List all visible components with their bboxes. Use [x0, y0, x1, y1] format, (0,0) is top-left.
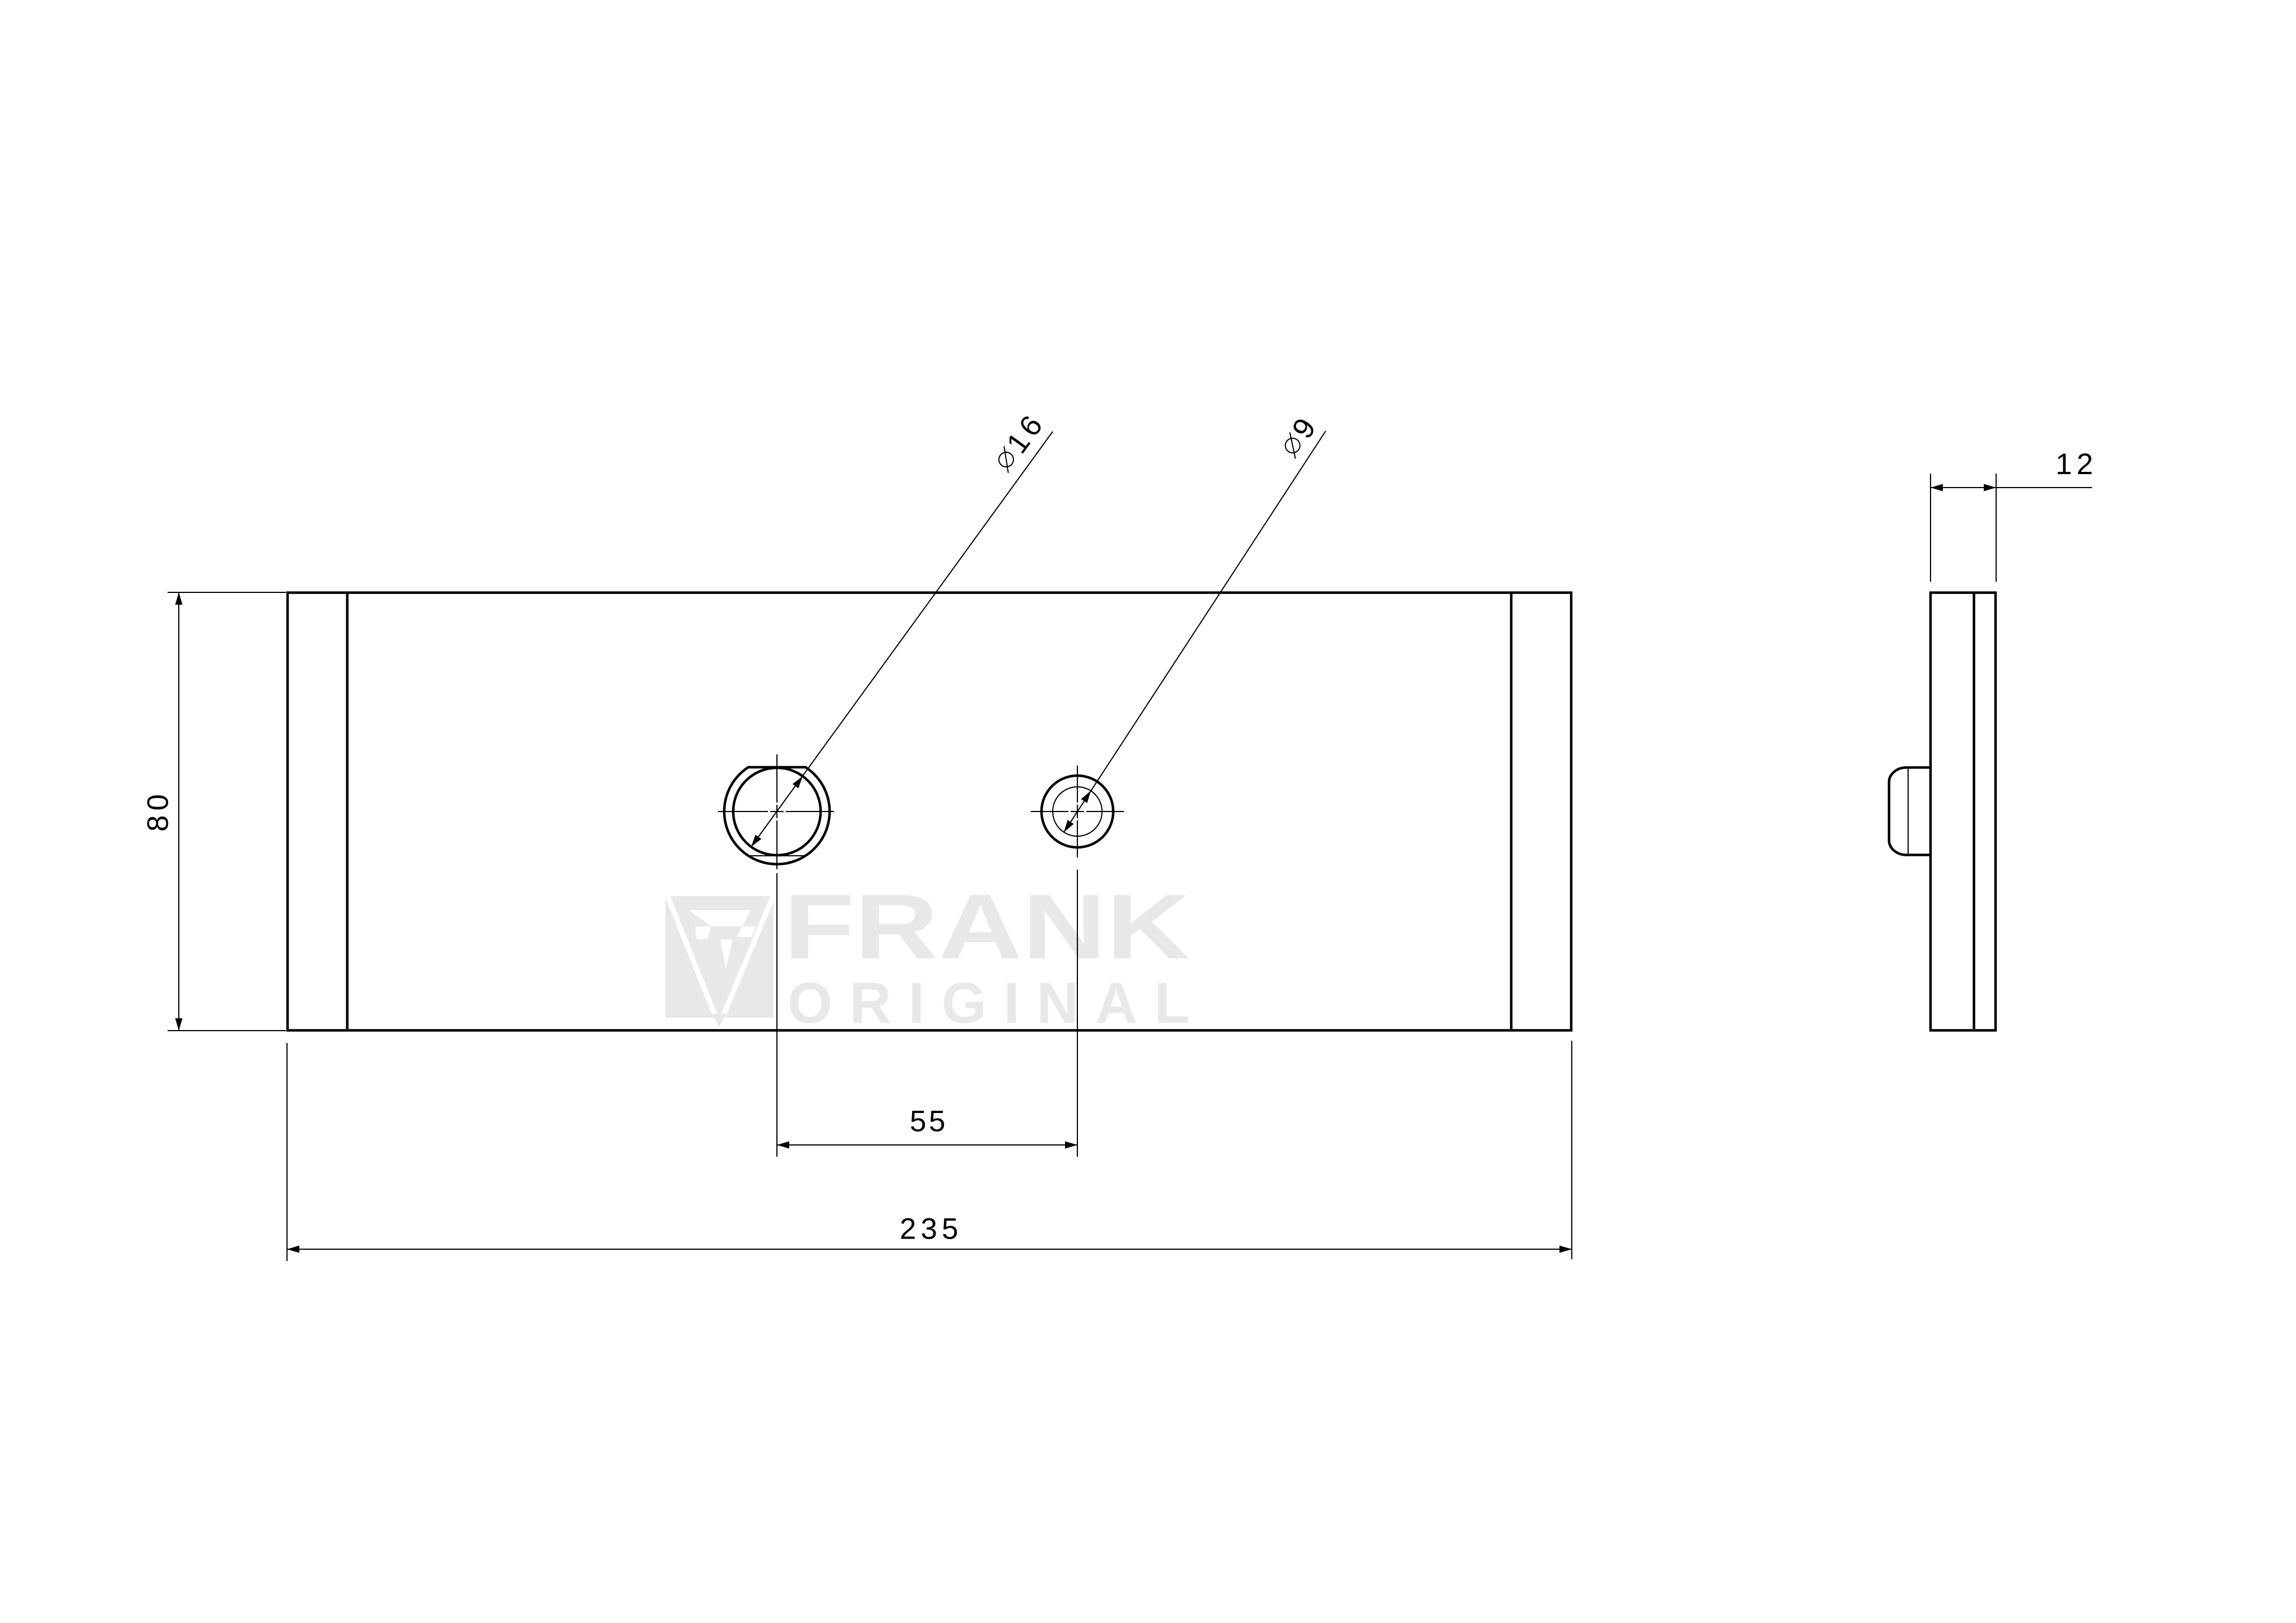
svg-text:12: 12: [2056, 448, 2098, 481]
svg-text:235: 235: [900, 1213, 962, 1246]
svg-text:FRANK: FRANK: [784, 875, 1190, 978]
svg-text:55: 55: [910, 1105, 948, 1138]
svg-text:ORIGINAL: ORIGINAL: [788, 971, 1207, 1035]
svg-text:80: 80: [142, 790, 175, 832]
